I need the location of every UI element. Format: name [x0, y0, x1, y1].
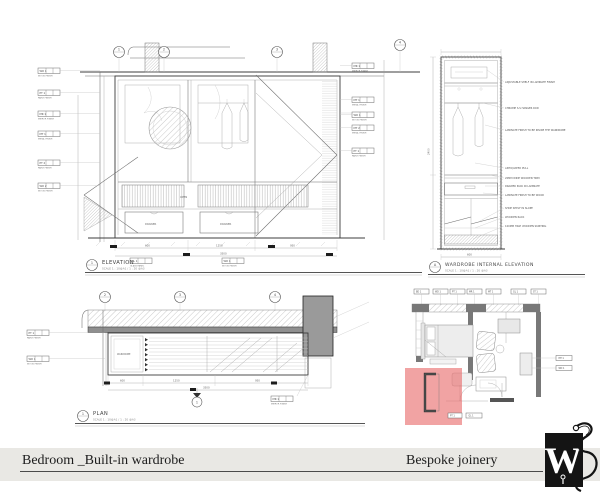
- svg-text:WD 1: WD 1: [559, 367, 566, 370]
- keyplan-chairs: [476, 331, 504, 373]
- svg-text:GL 1: GL 1: [513, 291, 519, 294]
- keyplan-bed: [421, 323, 473, 364]
- svg-text:WOOD FINISH: WOOD FINISH: [38, 191, 53, 193]
- finish-tag: MT 1 METAL FINISH: [340, 97, 374, 107]
- elevation-view: 1 2 3 4: [30, 35, 425, 285]
- svg-text:1250: 1250: [216, 244, 223, 248]
- wardrobe-left-compartment: WARDROBE: [111, 336, 143, 372]
- drawing-sheet: 1 2 3 4: [0, 0, 600, 495]
- svg-text:ST 1: ST 1: [533, 291, 538, 294]
- footer-rule: [20, 471, 543, 472]
- svg-text:MIRROR FINISH: MIRROR FINISH: [352, 71, 368, 73]
- svg-text:LAMINATE FINISH TO BE WOOD: LAMINATE FINISH TO BE WOOD: [505, 193, 544, 197]
- view-scale-text: SCALE 1 : 10@A1 / 1 : 20 @A3: [93, 418, 136, 422]
- svg-text:MT 2: MT 2: [354, 126, 361, 130]
- mirror-circle: [149, 107, 191, 149]
- svg-text:PAINT FINISH: PAINT FINISH: [27, 337, 41, 340]
- finish-tag: WD 1 WOOD FINISH: [27, 356, 105, 366]
- svg-text:WOODEN RACK: WOODEN RACK: [505, 215, 525, 219]
- plan-view: 2 3 4 WARDROBE: [25, 288, 370, 428]
- view-title-text: WARDROBE INTERNAL ELEVATION: [445, 262, 534, 268]
- grid-bubble: 4: [395, 40, 406, 73]
- finish-tag: MR 1 MIRROR FINISH: [340, 63, 374, 73]
- svg-text:MR 1: MR 1: [40, 112, 47, 116]
- svg-text:WOOD FINISH: WOOD FINISH: [27, 364, 42, 366]
- door-panel-right: [198, 85, 248, 143]
- mid-drawer: [445, 175, 498, 199]
- wardrobe-label: WARDROBE: [117, 353, 131, 356]
- keyplan-tv-bench: [476, 377, 506, 391]
- svg-text:PAINT FINISH: PAINT FINISH: [38, 167, 52, 170]
- svg-text:PT 1: PT 1: [354, 149, 360, 153]
- svg-text:600: 600: [120, 379, 125, 383]
- svg-text:WOOD FINISH: WOOD FINISH: [352, 120, 367, 122]
- svg-text:PT 1: PT 1: [450, 415, 455, 418]
- svg-text:2: 2: [104, 293, 106, 297]
- finish-tag: PT 1 PAINT FINISH: [340, 148, 374, 158]
- view-title-text: PLAN: [93, 411, 108, 417]
- svg-text:1250: 1250: [173, 379, 180, 383]
- louver-band: OPEN: [118, 182, 337, 209]
- svg-text:WD 1: WD 1: [354, 113, 361, 117]
- hanger-rod: [445, 103, 498, 156]
- finish-tag: MT 1 METAL FINISH: [38, 131, 100, 141]
- internal-elevation-view: 2400 600 ADJUSTABLE SHELF IN LAMINATE FI…: [425, 45, 597, 285]
- svg-text:1: 1: [118, 48, 120, 52]
- svg-text:WOOD FINISH: WOOD FINISH: [38, 76, 53, 78]
- svg-text:METAL FINISH: METAL FINISH: [38, 138, 53, 141]
- view-title-text: ELEVATION: [102, 260, 134, 266]
- tick-column: [145, 338, 148, 371]
- annotations: ADJUSTABLE SHELF IN LAMINATE FINISH CHRO…: [473, 70, 566, 239]
- svg-text:WD 1: WD 1: [224, 259, 231, 263]
- svg-text:600: 600: [145, 244, 150, 248]
- svg-text:3: 3: [276, 48, 278, 52]
- svg-text:MT 1: MT 1: [354, 98, 361, 102]
- logo-letter: W: [545, 441, 582, 482]
- wall-column-block: [303, 296, 333, 356]
- view-title: A WARDROBE INTERNAL ELEVATION SCALE 1 : …: [428, 262, 585, 278]
- open-label: OPEN: [180, 195, 187, 199]
- grid-bubble: 1: [114, 47, 125, 73]
- bulkhead-hatch-right: [313, 43, 327, 72]
- svg-text:2400: 2400: [427, 148, 431, 155]
- svg-text:3500: 3500: [220, 252, 227, 256]
- finish-tag: PT 1 PAINT FINISH: [38, 90, 100, 100]
- svg-text:WD 1: WD 1: [29, 357, 36, 361]
- grid-bubble: 4: [270, 292, 281, 312]
- svg-text:MIRROR FINISH: MIRROR FINISH: [38, 119, 54, 121]
- svg-text:100MM HIGH WOODEN SKIRTING: 100MM HIGH WOODEN SKIRTING: [505, 224, 546, 228]
- svg-text:SHOE SHELF IN SLOPE: SHOE SHELF IN SLOPE: [505, 206, 533, 210]
- svg-text:1: 1: [196, 401, 198, 405]
- keyplan-tags-top: BD 1 WD 1 PT 1 MR 1 MT 1 GL 1 ST 1: [414, 289, 546, 305]
- finish-tag: WD 2 WOOD FINISH: [38, 183, 100, 193]
- skirting: [445, 235, 498, 244]
- svg-text:MR 1: MR 1: [354, 64, 361, 68]
- top-shelf: [445, 67, 498, 90]
- hanging-garments: [198, 99, 248, 149]
- svg-text:METAL FINISH: METAL FINISH: [352, 104, 367, 107]
- grid-bubble: 3: [175, 292, 186, 312]
- svg-text:GL 1: GL 1: [469, 415, 475, 418]
- svg-text:PT 1: PT 1: [40, 91, 46, 95]
- svg-text:PAINT FINISH: PAINT FINISH: [38, 97, 52, 100]
- svg-text:MT 1: MT 1: [40, 132, 47, 136]
- svg-text:4: 4: [274, 293, 276, 297]
- keyplan-cabinet: [498, 319, 520, 333]
- key-plan: BD 1 WD 1 PT 1 MR 1 MT 1 GL 1 ST 1: [398, 285, 598, 435]
- finish-tag: WD 1 WOOD FINISH: [340, 112, 374, 122]
- finish-tag: MR 1 MIRROR FINISH: [38, 111, 100, 121]
- view-scale-text: SCALE 1 : 10@A1 / 1 : 20 @A3: [445, 269, 488, 273]
- grid-bubble: 3: [272, 47, 283, 73]
- door-swing-right: [256, 75, 337, 236]
- grid-bubble: 2: [100, 292, 111, 312]
- svg-text:20MM WIDE WOODEN TRIM: 20MM WIDE WOODEN TRIM: [505, 176, 540, 180]
- drawer-right: DRAWER: [200, 212, 258, 233]
- svg-text:PT 1: PT 1: [452, 291, 457, 294]
- svg-text:3: 3: [179, 293, 181, 297]
- svg-text:1: 1: [82, 412, 84, 416]
- svg-text:MR 1: MR 1: [273, 397, 280, 401]
- wall-band: [82, 310, 337, 333]
- shoe-shelf: [445, 199, 498, 236]
- svg-text:ANTIQUATED PULL: ANTIQUATED PULL: [505, 166, 529, 170]
- view-title: 1 PLAN SCALE 1 : 10@A1 / 1 : 20 @A3: [75, 411, 365, 427]
- svg-text:MT 1: MT 1: [559, 357, 565, 360]
- grid-bubble: 2: [159, 47, 170, 73]
- svg-text:LAMINATE FINISH TO BE INSIDE T: LAMINATE FINISH TO BE INSIDE THE WARDROB…: [505, 128, 566, 132]
- svg-text:WD 1: WD 1: [435, 291, 442, 294]
- svg-text:DRAWER PACK IN LAMINATE: DRAWER PACK IN LAMINATE: [505, 184, 540, 188]
- svg-text:PAINT FINISH: PAINT FINISH: [352, 155, 366, 158]
- svg-text:950: 950: [290, 244, 295, 248]
- view-scale-text: SCALE 1 : 10@A1 / 1 : 20 @A3: [102, 267, 145, 271]
- svg-text:3500: 3500: [203, 386, 210, 390]
- svg-text:MT 1: MT 1: [488, 291, 494, 294]
- svg-text:MIRROR FINISH: MIRROR FINISH: [271, 404, 287, 406]
- bulkhead-hatch-left: [145, 43, 159, 72]
- svg-text:ADJUSTABLE SHELF IN LAMINATE F: ADJUSTABLE SHELF IN LAMINATE FINISH: [505, 80, 555, 84]
- wardrobe-plan-outline: [108, 333, 308, 375]
- svg-text:1: 1: [91, 261, 93, 265]
- finish-tag: PT 2 PAINT FINISH: [38, 160, 100, 170]
- finish-tag: MT 2 METAL FINISH: [340, 125, 374, 135]
- svg-text:2: 2: [163, 48, 165, 52]
- svg-text:WD 2: WD 2: [40, 184, 47, 188]
- svg-text:PT 2: PT 2: [40, 161, 46, 165]
- svg-text:BD 1: BD 1: [416, 291, 422, 294]
- drawer-label: DRAWER: [145, 222, 157, 226]
- finish-tag: MR 1 MIRROR FINISH: [271, 375, 308, 406]
- sheet-subtitle: Bespoke joinery: [406, 453, 497, 469]
- svg-text:4: 4: [399, 41, 401, 45]
- brand-logo: W: [543, 420, 597, 494]
- dimension-lines: 2400 600: [427, 57, 502, 260]
- dimension-row: 600 1250 950 3500: [110, 240, 337, 256]
- sheet-title: Bedroom _Built-in wardrobe: [22, 453, 185, 469]
- keyplan-tags-bottom: PT 1 GL 1: [448, 413, 482, 418]
- svg-text:950: 950: [255, 379, 260, 383]
- svg-text:MR 1: MR 1: [469, 291, 475, 294]
- finish-tag: WD 1 WOOD FINISH: [222, 258, 244, 268]
- decor-sketch: [215, 85, 220, 119]
- svg-text:600: 600: [467, 253, 472, 257]
- svg-text:PT 1: PT 1: [29, 331, 35, 335]
- svg-text:CHROME S.S HANGER ROD: CHROME S.S HANGER ROD: [505, 106, 539, 110]
- keyplan-tags-right: MT 1 WD 1: [556, 356, 572, 371]
- svg-text:METAL FINISH: METAL FINISH: [352, 132, 367, 135]
- svg-text:WOOD FINISH: WOOD FINISH: [222, 266, 237, 268]
- dimension-row: 600 1250 950 3500: [104, 375, 308, 391]
- drawer-label: DRAWER: [220, 222, 232, 226]
- svg-text:WD 1: WD 1: [40, 69, 47, 73]
